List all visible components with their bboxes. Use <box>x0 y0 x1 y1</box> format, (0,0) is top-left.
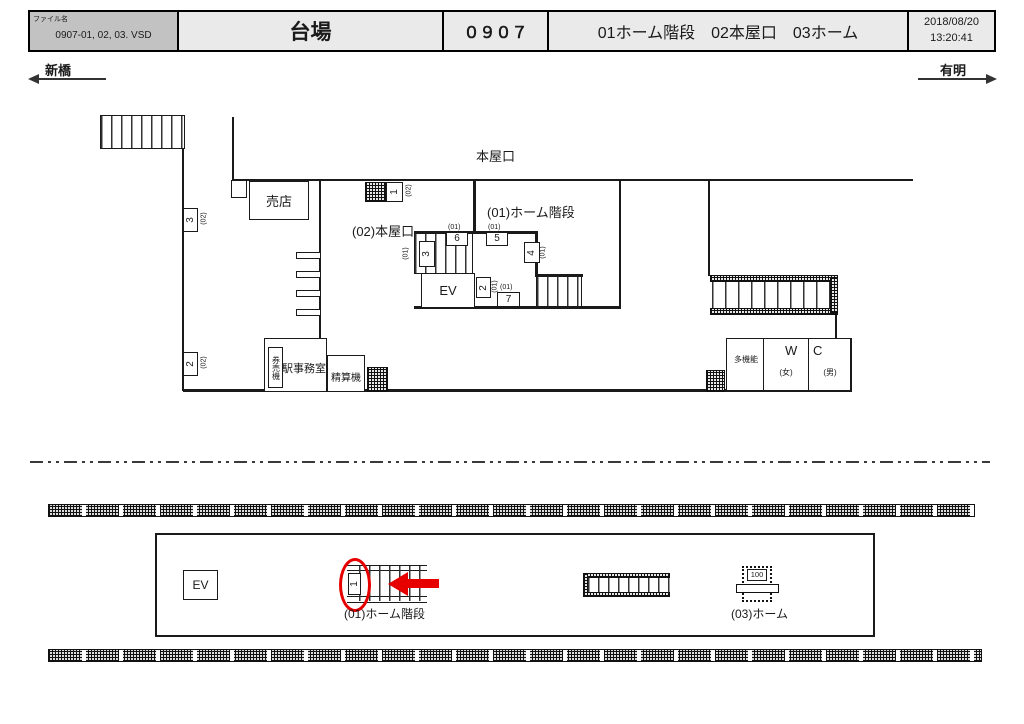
wall-top <box>233 179 913 181</box>
sign-location-sub: (01) <box>403 243 410 265</box>
date-value: 2018/08/20 <box>924 15 979 31</box>
sign-location-box-3-02: 3 <box>183 208 198 232</box>
sign-location-sub: (01) <box>540 242 547 264</box>
station-code: ０９０７ <box>463 19 527 43</box>
direction-right-line <box>918 78 988 80</box>
platform-home-label: (03)ホーム <box>731 605 788 622</box>
elevator-label: EV <box>439 283 456 298</box>
sign-location-box-4-01: 4 <box>524 242 540 263</box>
wall-stair-right <box>619 181 621 309</box>
station-code-cell: ０９０７ <box>442 12 547 50</box>
file-name-label: ファイル名 <box>33 14 68 24</box>
highlight-arrow-icon <box>388 571 440 596</box>
station-name-cell: 台場 <box>177 12 442 50</box>
direction-right-label: 有明 <box>940 60 966 79</box>
sign-location-sub: (02) <box>406 180 413 202</box>
sign-crossbar <box>736 584 779 593</box>
sign-location-sub: (02) <box>201 208 208 230</box>
escalator-rail <box>710 308 838 315</box>
restroom-divider <box>808 339 809 391</box>
sheet-subtitle: 01ホーム階段 02本屋口 03ホーム <box>598 19 858 43</box>
ticket-gate-bar <box>296 252 321 259</box>
title-block: ファイル名 0907-01, 02, 03. VSD 台場 ０９０７ 01ホーム… <box>28 10 996 52</box>
gate-rail-line <box>319 181 321 341</box>
elevator-box: EV <box>421 273 475 308</box>
fare-adjust-box: 精算機 <box>327 355 365 392</box>
direction-left-line <box>36 78 106 80</box>
hatched-pillar <box>706 370 725 392</box>
fare-adjust-label: 精算機 <box>331 369 361 384</box>
wall-upper <box>232 117 234 181</box>
wall-wc-link <box>835 314 837 339</box>
accessible-toilet-label: 多機能 <box>730 354 762 365</box>
ticket-gate-bar <box>296 271 321 278</box>
platform-escalator <box>583 573 670 597</box>
wc-label-w: W <box>785 343 797 358</box>
platform-elevator-label: EV <box>192 578 208 592</box>
sign-location-sub: (02) <box>201 352 208 374</box>
escalator-steps <box>712 282 830 308</box>
escalator <box>710 275 838 315</box>
sign-location-box-3-01: 3 <box>419 241 435 267</box>
platform-stairs-label: (01)ホーム階段 <box>344 605 425 622</box>
section-separator-line <box>30 461 990 463</box>
direction-left: 新橋 <box>28 60 113 86</box>
arrow-right-icon <box>986 74 997 84</box>
platform-edge-strip-top <box>48 504 975 517</box>
escalator-rail <box>583 592 670 597</box>
file-name-cell: ファイル名 0907-01, 02, 03. VSD <box>30 12 177 50</box>
sign-location-box-7-01: 7 <box>497 292 520 307</box>
wall-escalator-left <box>708 180 710 276</box>
men-toilet-label: (男) <box>810 367 850 378</box>
station-drawing-sheet: ファイル名 0907-01, 02, 03. VSD 台場 ０９０７ 01ホーム… <box>0 0 1024 724</box>
station-office-box: 券売機 駅事務室 <box>264 338 327 392</box>
restroom-divider <box>763 339 764 391</box>
restroom-block: 多機能 W C (女) (男) <box>726 338 852 392</box>
women-toilet-label: (女) <box>765 367 807 378</box>
sheet-subtitle-cell: 01ホーム階段 02本屋口 03ホーム <box>547 12 907 50</box>
hatched-pillar <box>365 182 386 202</box>
wc-label-c: C <box>813 343 822 358</box>
wall-pillar-box <box>231 180 247 198</box>
hatched-pillar <box>367 367 388 392</box>
sign-location-sub: (01) <box>488 224 500 231</box>
ticket-machine-box: 券売機 <box>268 347 283 388</box>
label-platform-stairs-01: (01)ホーム階段 <box>487 202 575 221</box>
highlight-circle <box>339 558 371 612</box>
sign-location-sub: (01) <box>500 284 512 291</box>
direction-right: 有明 <box>912 60 997 86</box>
ticket-gate-bar <box>296 309 321 316</box>
escalator-steps <box>588 578 670 592</box>
label-main-entrance: 本屋口 <box>476 146 515 165</box>
station-office-label: 駅事務室 <box>282 360 326 376</box>
ticket-machine-label: 券売機 <box>272 356 280 380</box>
stairwell-b <box>536 276 582 307</box>
time-value: 13:20:41 <box>930 31 973 47</box>
wall-stair-left <box>473 181 476 234</box>
file-name-value: 0907-01, 02, 03. VSD <box>55 30 151 41</box>
escalator-end-cap <box>830 277 838 313</box>
platform-elevator-box: EV <box>183 570 218 600</box>
sign-location-box-6-01: 6 <box>446 232 468 246</box>
platform-edge-strip-bottom <box>48 649 982 662</box>
station-name: 台場 <box>290 16 332 46</box>
ticket-gate-bar <box>296 290 321 297</box>
sign-location-box-2-01: 2 <box>476 277 491 298</box>
arrow-left-icon <box>28 74 39 84</box>
escalator-rail <box>710 275 838 282</box>
kiosk-label: 売店 <box>266 191 292 210</box>
direction-left-label: 新橋 <box>45 60 71 79</box>
sign-location-box-2-02: 2 <box>183 352 198 376</box>
exterior-stair <box>100 115 185 149</box>
sign-number-box: 100 <box>747 569 767 581</box>
datetime-cell: 2018/08/20 13:20:41 <box>907 12 994 50</box>
label-entrance-02: (02)本屋口 <box>352 221 414 240</box>
sign-location-sub: (01) <box>448 224 460 231</box>
sign-location-box-5-01: 5 <box>486 232 508 246</box>
sign-location-box-1-02: 1 <box>386 182 403 202</box>
kiosk-box: 売店 <box>249 181 309 220</box>
